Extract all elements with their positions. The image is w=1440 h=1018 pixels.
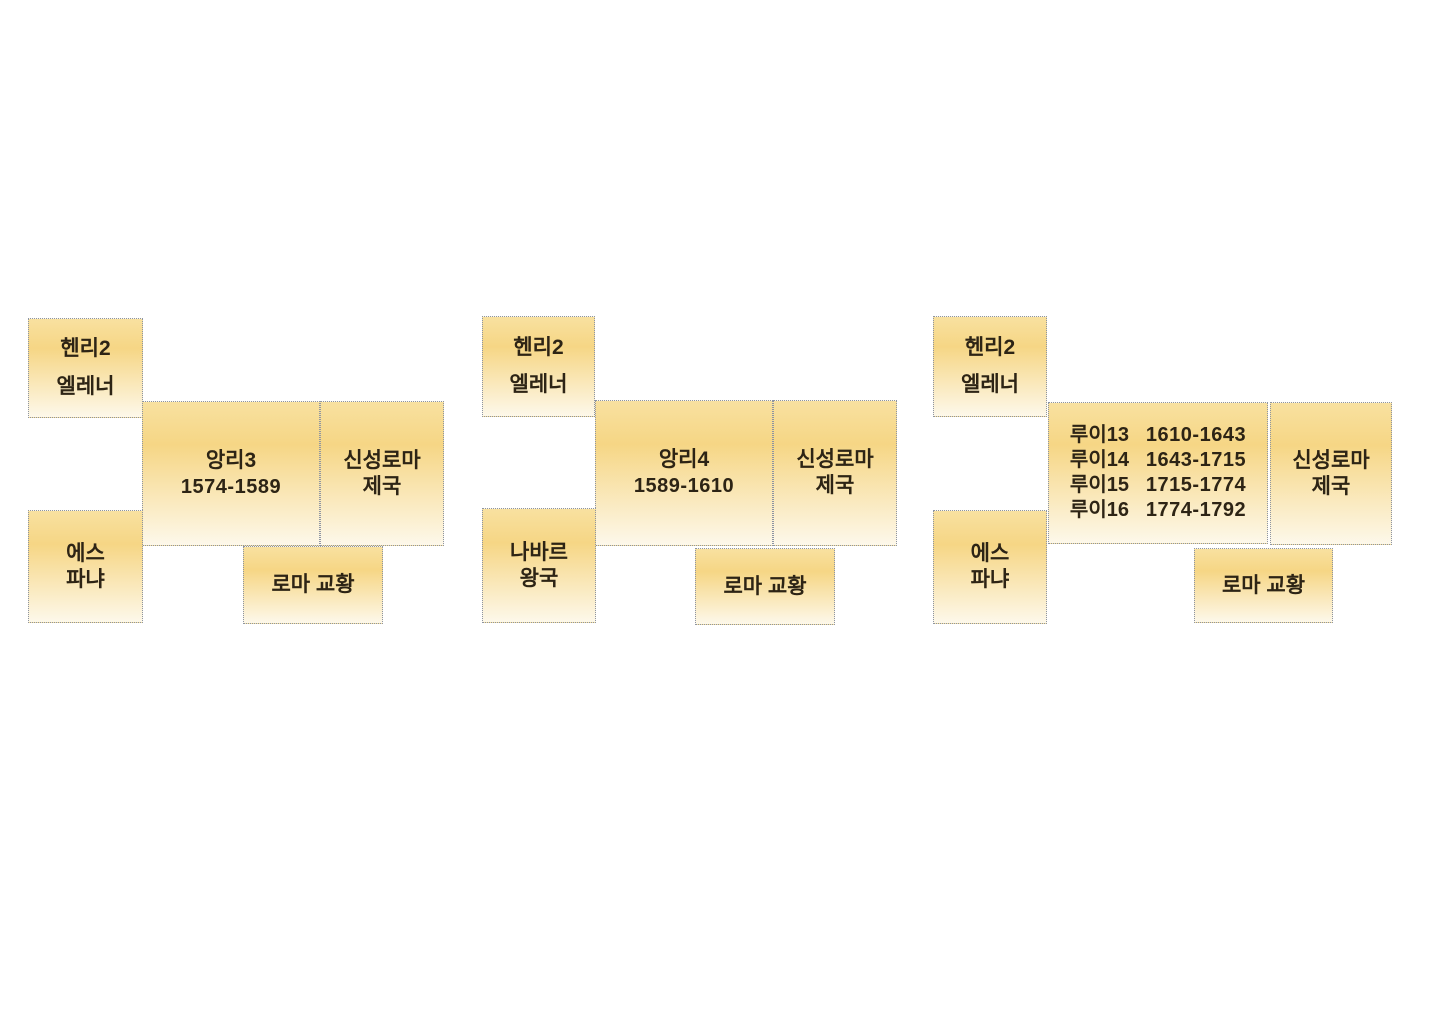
henri4-holy-roman-empire-box: 신성로마 제국: [773, 400, 897, 546]
louis-kings-box: 루이13 1610-1643 루이14 1643-1715 루이15 1715-…: [1048, 402, 1268, 544]
louis14-years: 1643-1715: [1146, 448, 1246, 473]
empire-label-line2: 제국: [816, 473, 855, 499]
empire-label-line2: 제국: [1312, 474, 1351, 500]
king-years-label: 1589-1610: [634, 473, 734, 499]
navarre-label-line1: 나바르: [510, 540, 568, 566]
king-name-label: 앙리3: [206, 448, 256, 474]
henri4-king-box: 앙리4 1589-1610: [595, 400, 773, 546]
king-years-label: 1574-1589: [181, 474, 281, 500]
louis15-name: 루이15: [1070, 473, 1132, 498]
louis13-name: 루이13: [1070, 423, 1132, 448]
espana-label-line1: 에스: [971, 541, 1010, 567]
espana-label-line2: 파냐: [66, 567, 105, 593]
empire-label-line1: 신성로마: [796, 447, 873, 473]
louis-roman-pope-box: 로마 교황: [1194, 548, 1333, 623]
pope-label: 로마 교황: [723, 574, 806, 600]
king-name-label: 앙리4: [659, 447, 709, 473]
henri4-navarre-kingdom-box: 나바르 왕국: [482, 508, 596, 623]
louis-espana-box: 에스 파냐: [933, 510, 1047, 624]
diagram-canvas: 헨리2 엘레너 앙리3 1574-1589 신성로마 제국 에스 파냐 로마 교…: [0, 0, 1440, 1018]
empire-label-line2: 제국: [363, 474, 402, 500]
henri3-roman-pope-box: 로마 교황: [243, 546, 383, 624]
espana-label-line1: 에스: [66, 541, 105, 567]
henry2-label: 헨리2: [965, 335, 1015, 361]
louis16-years: 1774-1792: [1146, 498, 1246, 523]
eleanor-label: 엘레너: [510, 372, 568, 398]
eleanor-label: 엘레너: [961, 372, 1019, 398]
henri4-roman-pope-box: 로마 교황: [695, 548, 835, 625]
louis16-row: 루이16 1774-1792: [1070, 498, 1246, 523]
louis15-years: 1715-1774: [1146, 473, 1246, 498]
empire-label-line1: 신성로마: [1292, 448, 1369, 474]
eleanor-label: 엘레너: [57, 374, 115, 400]
louis16-name: 루이16: [1070, 498, 1132, 523]
henry2-label: 헨리2: [513, 335, 563, 361]
henry2-label: 헨리2: [60, 336, 110, 362]
empire-label-line1: 신성로마: [343, 448, 420, 474]
navarre-label-line2: 왕국: [520, 566, 559, 592]
henri3-espana-box: 에스 파냐: [28, 510, 143, 623]
louis14-name: 루이14: [1070, 448, 1132, 473]
henri4-henry2-eleanor-box: 헨리2 엘레너: [482, 316, 595, 417]
louis13-years: 1610-1643: [1146, 423, 1246, 448]
louis-kings-list: 루이13 1610-1643 루이14 1643-1715 루이15 1715-…: [1070, 423, 1246, 523]
pope-label: 로마 교황: [1222, 573, 1305, 599]
louis14-row: 루이14 1643-1715: [1070, 448, 1246, 473]
pope-label: 로마 교황: [271, 572, 354, 598]
louis-holy-roman-empire-box: 신성로마 제국: [1270, 402, 1392, 545]
louis-henry2-eleanor-box: 헨리2 엘레너: [933, 316, 1047, 417]
henri3-henry2-eleanor-box: 헨리2 엘레너: [28, 318, 143, 418]
espana-label-line2: 파냐: [971, 567, 1010, 593]
louis15-row: 루이15 1715-1774: [1070, 473, 1246, 498]
henri3-king-box: 앙리3 1574-1589: [142, 401, 320, 546]
henri3-holy-roman-empire-box: 신성로마 제국: [320, 401, 444, 546]
louis13-row: 루이13 1610-1643: [1070, 423, 1246, 448]
